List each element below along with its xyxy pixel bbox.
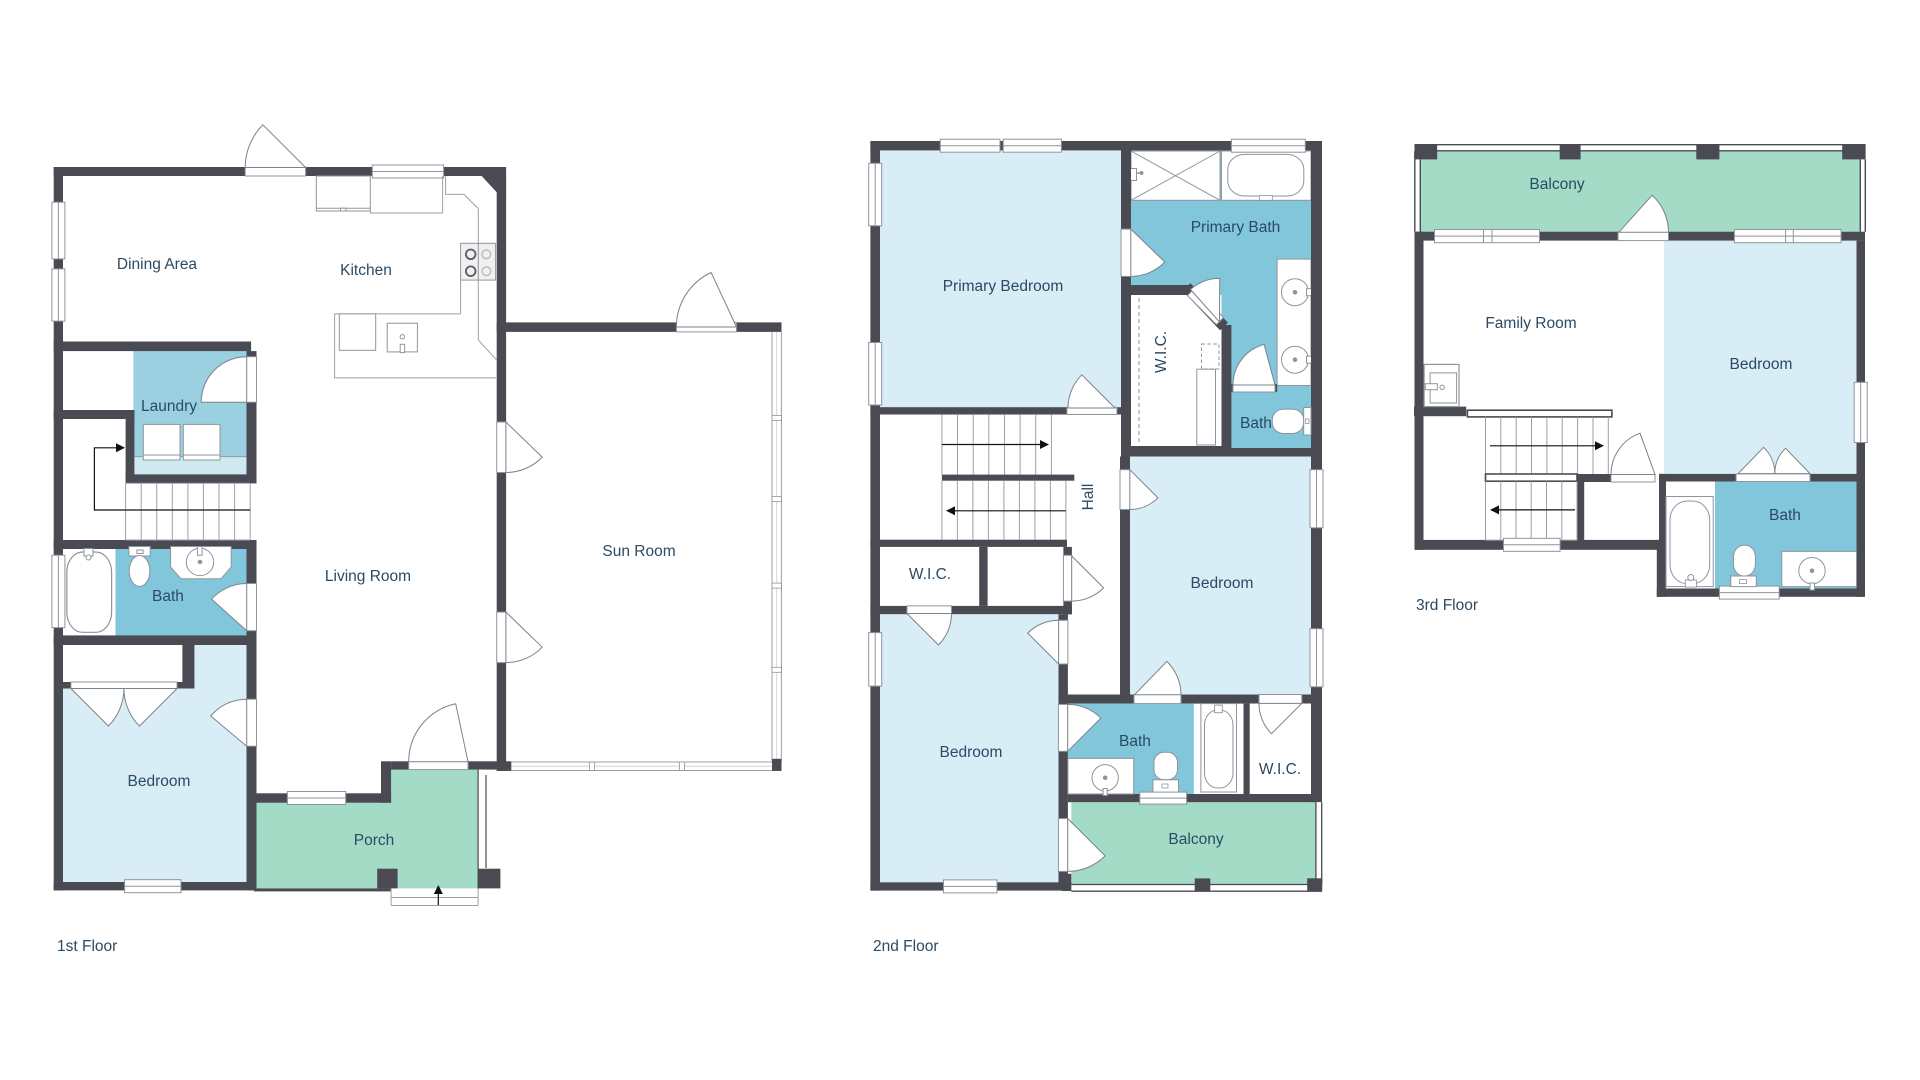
svg-text:3rd Floor: 3rd Floor — [1416, 597, 1478, 614]
svg-text:W.I.C.: W.I.C. — [1153, 331, 1170, 373]
svg-text:Bath: Bath — [152, 588, 184, 605]
svg-text:Family Room: Family Room — [1485, 315, 1576, 332]
svg-text:W.I.C.: W.I.C. — [1259, 761, 1301, 778]
svg-text:Dining Area: Dining Area — [117, 256, 198, 273]
svg-text:Kitchen: Kitchen — [340, 262, 392, 279]
svg-text:Bedroom: Bedroom — [128, 773, 191, 790]
svg-text:Primary Bath: Primary Bath — [1191, 219, 1281, 236]
svg-text:Balcony: Balcony — [1168, 831, 1223, 848]
svg-text:Bath: Bath — [1240, 415, 1272, 432]
svg-text:Bath: Bath — [1769, 507, 1801, 524]
svg-text:Balcony: Balcony — [1529, 176, 1584, 193]
svg-text:Laundry: Laundry — [141, 398, 197, 415]
svg-text:Bedroom: Bedroom — [1191, 575, 1254, 592]
svg-text:Primary Bedroom: Primary Bedroom — [943, 278, 1064, 295]
svg-text:Bedroom: Bedroom — [1730, 356, 1793, 373]
svg-text:Sun Room: Sun Room — [602, 543, 675, 560]
svg-text:Living Room: Living Room — [325, 568, 411, 585]
svg-text:Hall: Hall — [1080, 484, 1097, 511]
svg-text:Bath: Bath — [1119, 733, 1151, 750]
svg-text:Bedroom: Bedroom — [940, 744, 1003, 761]
svg-text:W.I.C.: W.I.C. — [909, 566, 951, 583]
svg-text:2nd Floor: 2nd Floor — [873, 938, 938, 955]
svg-text:Porch: Porch — [354, 832, 395, 849]
svg-text:1st Floor: 1st Floor — [57, 938, 117, 955]
